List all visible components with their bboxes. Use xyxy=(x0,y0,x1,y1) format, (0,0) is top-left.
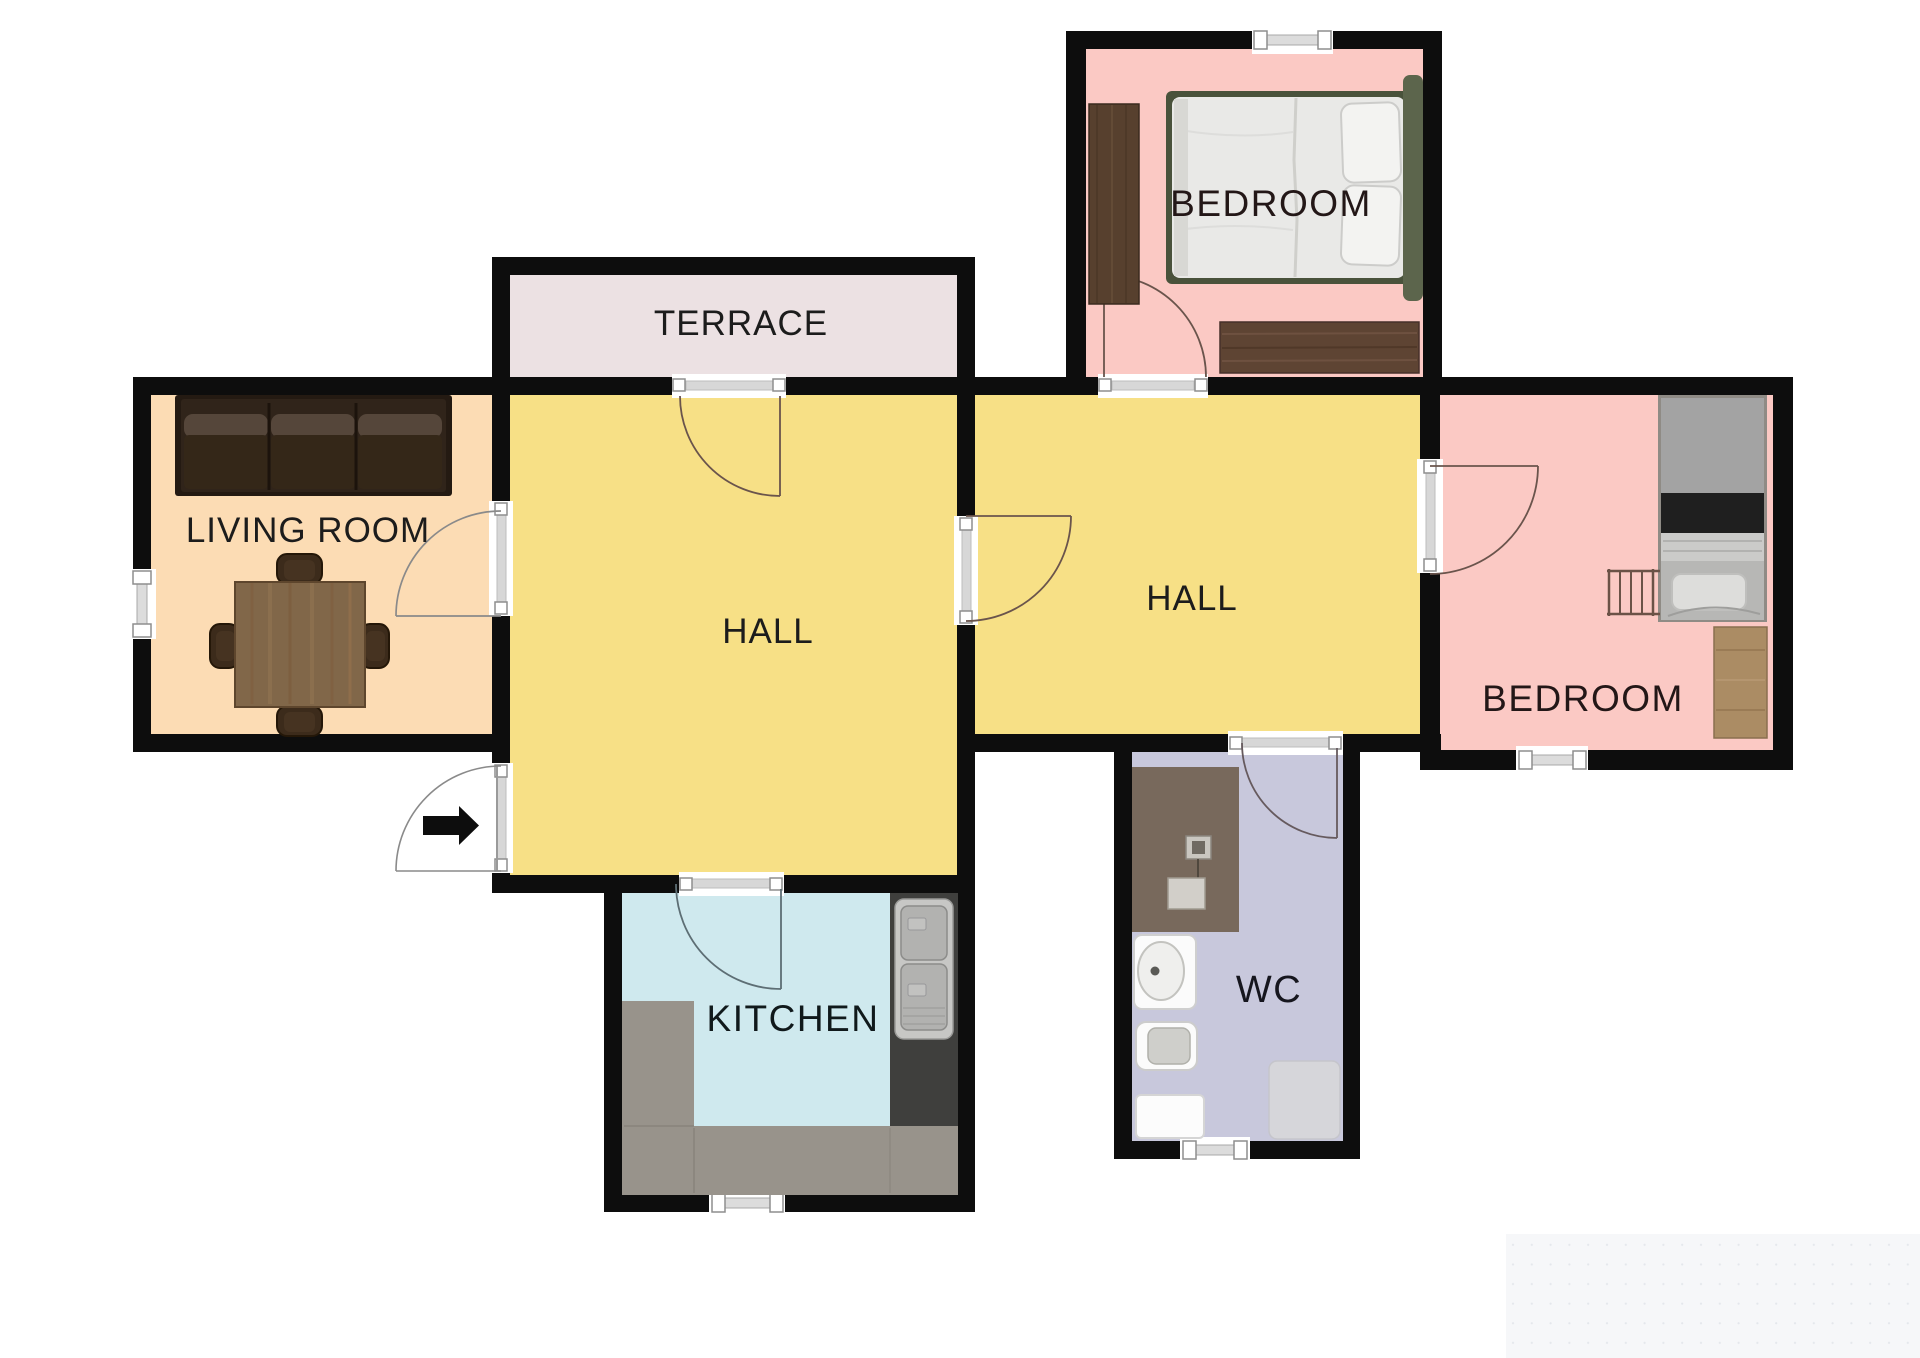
svg-text:BEDROOM: BEDROOM xyxy=(1170,183,1372,224)
svg-text:HALL: HALL xyxy=(722,612,814,651)
svg-text:TERRACE: TERRACE xyxy=(654,304,828,343)
svg-text:KITCHEN: KITCHEN xyxy=(707,998,880,1039)
svg-text:BEDROOM: BEDROOM xyxy=(1482,678,1684,719)
svg-text:HALL: HALL xyxy=(1146,579,1238,618)
svg-text:WC: WC xyxy=(1236,969,1302,1011)
svg-text:LIVING ROOM: LIVING ROOM xyxy=(186,511,430,550)
